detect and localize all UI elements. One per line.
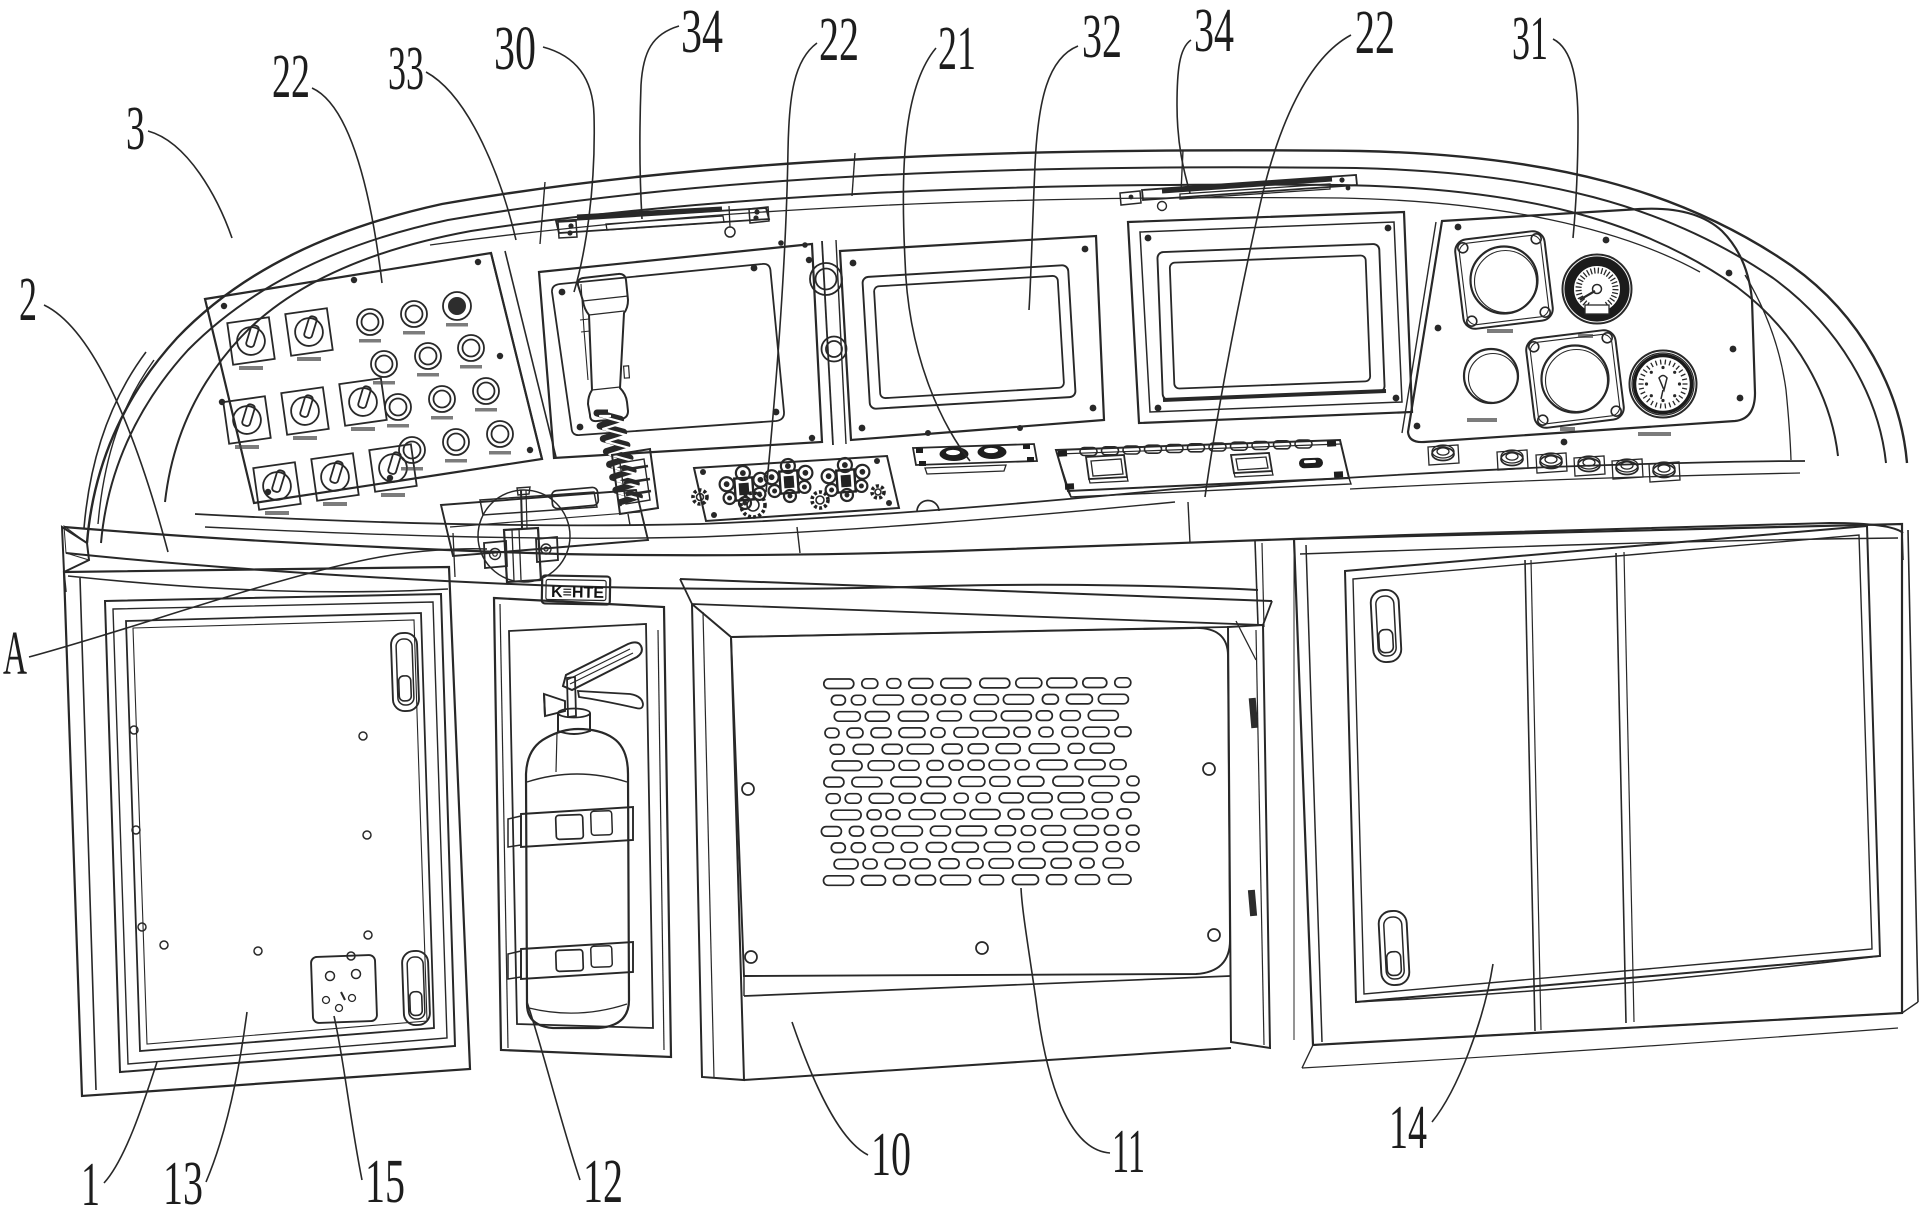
- svg-text:34: 34: [1194, 0, 1234, 65]
- svg-text:12: 12: [583, 1148, 623, 1208]
- svg-text:33: 33: [388, 35, 424, 103]
- svg-text:31: 31: [1512, 5, 1548, 73]
- svg-text:1: 1: [81, 1151, 100, 1208]
- svg-text:30: 30: [494, 15, 536, 83]
- svg-text:21: 21: [938, 15, 976, 83]
- svg-text:14: 14: [1389, 1094, 1427, 1162]
- svg-text:15: 15: [365, 1148, 405, 1208]
- svg-text:22: 22: [819, 6, 859, 74]
- svg-text:34: 34: [681, 0, 723, 66]
- svg-text:22: 22: [1355, 0, 1395, 67]
- svg-text:10: 10: [871, 1121, 911, 1189]
- svg-text:K≡HTE: K≡HTE: [551, 584, 605, 602]
- svg-text:22: 22: [272, 43, 310, 111]
- svg-text:11: 11: [1112, 1118, 1145, 1186]
- svg-text:A: A: [3, 620, 27, 688]
- svg-text:32: 32: [1082, 3, 1122, 71]
- svg-text:13: 13: [163, 1150, 203, 1208]
- svg-text:3: 3: [126, 95, 145, 163]
- svg-text:2: 2: [19, 266, 37, 334]
